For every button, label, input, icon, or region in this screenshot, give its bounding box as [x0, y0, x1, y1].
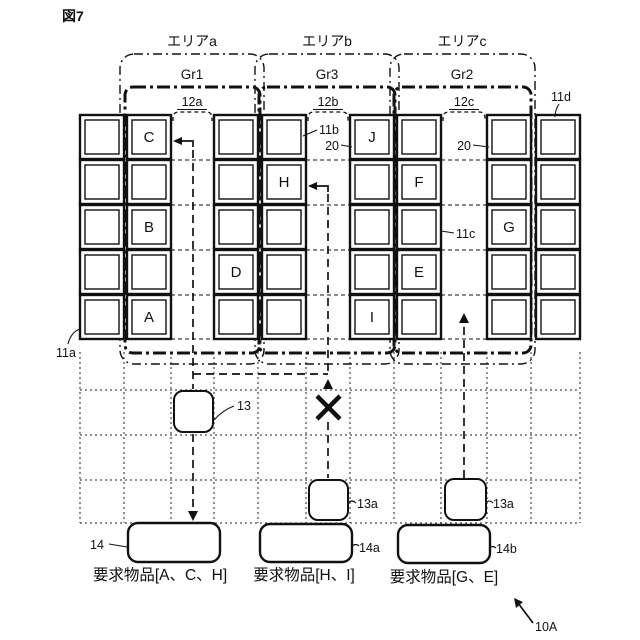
- aisle-12c-cap: [443, 112, 485, 121]
- robot-13-leader: [214, 406, 234, 420]
- cell-letter-A: A: [144, 309, 154, 326]
- cell-letter-E: E: [414, 264, 424, 281]
- robot-13a-center: [309, 480, 348, 520]
- station-14a-leader: [352, 545, 359, 547]
- storage-cell-inner: [85, 300, 119, 334]
- storage-cell-inner: [219, 165, 253, 199]
- area-b-label: エリアb: [302, 33, 352, 49]
- ref-20-gr2-label: 20: [457, 139, 471, 153]
- storage-cell-inner: [492, 120, 526, 154]
- group-gr3-label: Gr3: [316, 67, 339, 82]
- storage-cell-inner: [355, 255, 389, 289]
- storage-cell-inner: [541, 120, 575, 154]
- station-14a-label: 14a: [359, 541, 380, 555]
- storage-cell-inner: [355, 210, 389, 244]
- station-14-label: 14: [90, 538, 104, 552]
- storage-cell-inner: [85, 255, 119, 289]
- ref-11a-label: 11a: [56, 346, 76, 360]
- request-station14b-label: 要求物品[G、E]: [390, 568, 499, 586]
- storage-cell-inner: [402, 120, 436, 154]
- cell-letter-J: J: [368, 129, 376, 146]
- storage-cell-inner: [267, 255, 301, 289]
- storage-cell-inner: [492, 165, 526, 199]
- storage-cell-inner: [541, 255, 575, 289]
- station-14b-label: 14b: [496, 542, 517, 556]
- warehouse-diagram: 図7 エリアa エリアb エリアc Gr1 Gr3 Gr2 12a 12b 12…: [0, 0, 640, 640]
- storage-cell-inner: [541, 210, 575, 244]
- storage-cell-inner: [541, 165, 575, 199]
- station-14a: [260, 524, 352, 562]
- figure-label: 図7: [62, 8, 84, 24]
- storage-cell-inner: [402, 210, 436, 244]
- storage-cell-inner: [267, 120, 301, 154]
- robot-13a-center-leader: [348, 501, 356, 503]
- storage-cell-inner: [267, 210, 301, 244]
- station-14b: [398, 525, 490, 563]
- cell-letter-D: D: [231, 264, 242, 281]
- group-gr2-label: Gr2: [451, 67, 474, 82]
- ref-11b-label: 11b: [319, 123, 339, 137]
- storage-cell-inner: [132, 165, 166, 199]
- storage-cell-inner: [355, 165, 389, 199]
- storage-cell-inner: [267, 300, 301, 334]
- aisle-12a-label: 12a: [182, 95, 203, 109]
- route-12c-up-arrowhead-icon: [459, 313, 469, 323]
- storage-cell-inner: [219, 300, 253, 334]
- ref-11c-label: 11c: [456, 227, 475, 241]
- request-station14a-label: 要求物品[H、I]: [253, 566, 355, 584]
- cell-letter-F: F: [414, 174, 423, 191]
- aisle-12a-cap: [173, 112, 212, 121]
- station-14: [128, 523, 220, 562]
- ref-11c-leader: [441, 231, 454, 233]
- robot-13a-right-label: 13a: [493, 497, 514, 511]
- cell-letter-G: G: [503, 219, 515, 236]
- cell-letter-B: B: [144, 219, 154, 236]
- aisle-12b-cap: [308, 112, 348, 121]
- storage-cell-inner: [85, 120, 119, 154]
- cell-letter-C: C: [144, 129, 155, 146]
- robot-13a-center-label: 13a: [357, 497, 378, 511]
- route-blocked-up-arrowhead-icon: [323, 379, 333, 389]
- storage-cell-inner: [219, 120, 253, 154]
- robot-13: [174, 391, 213, 432]
- request-station14-label: 要求物品[A、C、H]: [93, 566, 227, 584]
- robot-13-label: 13: [237, 399, 251, 413]
- ref-11a-leader: [68, 329, 80, 344]
- route-14-arrowhead-icon: [188, 511, 198, 521]
- storage-cell-inner: [132, 255, 166, 289]
- storage-cell-inner: [85, 210, 119, 244]
- cell-letter-I: I: [370, 309, 374, 326]
- station-14b-leader: [489, 547, 496, 549]
- group-gr1-label: Gr1: [181, 67, 204, 82]
- system-ref-label: 10A: [535, 620, 558, 634]
- aisle-12c-label: 12c: [454, 95, 474, 109]
- ref-11d-label: 11d: [551, 90, 571, 104]
- patent-figure: 図7 エリアa エリアb エリアc Gr1 Gr3 Gr2 12a 12b 12…: [0, 0, 640, 640]
- system-ref-arrow: [518, 603, 533, 623]
- storage-cell-inner: [492, 300, 526, 334]
- storage-cell-inner: [219, 210, 253, 244]
- storage-cell-inner: [492, 255, 526, 289]
- storage-cell-inner: [85, 165, 119, 199]
- blocked-x-mark: [317, 396, 340, 419]
- area-c-label: エリアc: [438, 33, 487, 49]
- cell-letter-H: H: [279, 174, 290, 191]
- storage-cell-inner: [541, 300, 575, 334]
- robot-13a-right: [445, 479, 486, 520]
- storage-cell-inner: [402, 300, 436, 334]
- aisle-12b-label: 12b: [318, 95, 339, 109]
- station-14-leader: [109, 544, 127, 547]
- ref-20-gr3-label: 20: [325, 139, 339, 153]
- area-a-label: エリアa: [167, 33, 217, 49]
